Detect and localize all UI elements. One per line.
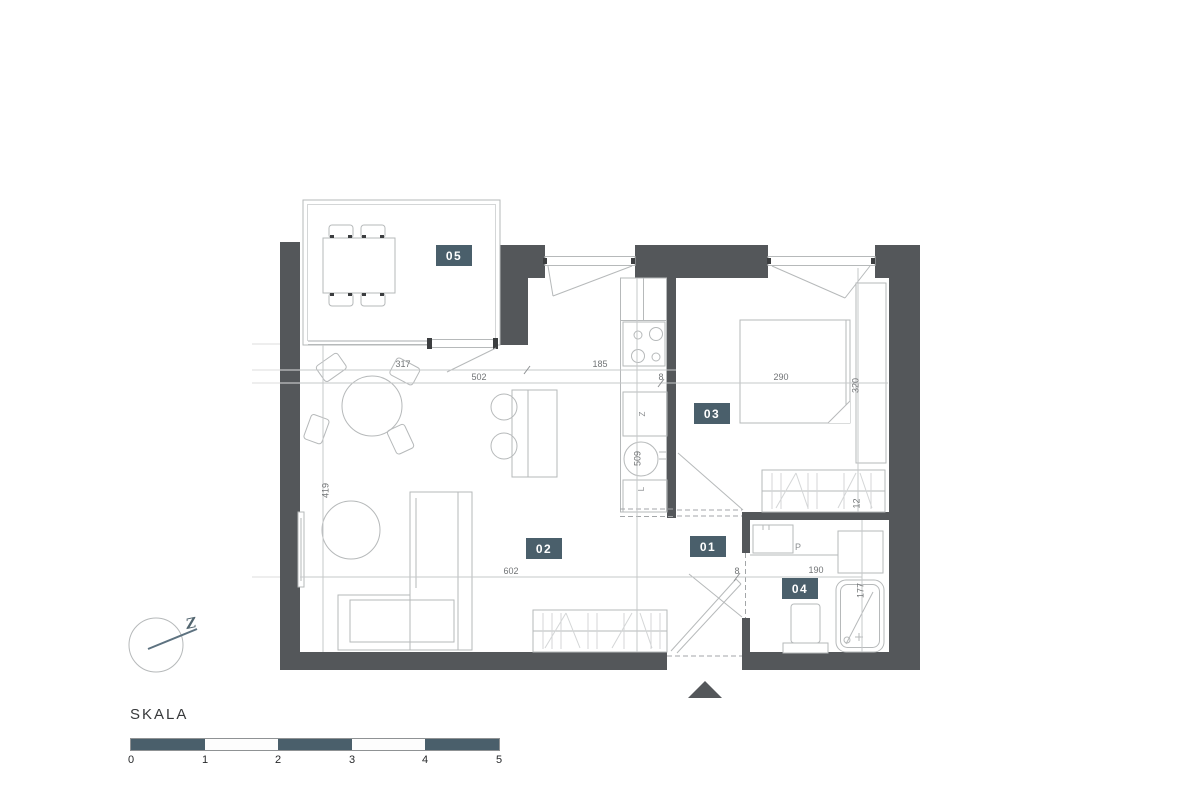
room-badge-02: 02: [526, 538, 562, 559]
balcony-table-set: [323, 225, 395, 306]
fridge-label: L: [636, 474, 646, 504]
scale-segment: [131, 739, 205, 750]
wall-bottom-left: [280, 652, 667, 670]
dimension-label-8-kitchen: 8: [646, 371, 676, 382]
scale-tick-0: 0: [121, 754, 141, 766]
wall-top-a: [528, 245, 545, 278]
scale-tick-1: 1: [195, 754, 215, 766]
dimension-label-185: 185: [585, 358, 615, 369]
entrance-marker-icon: [688, 681, 722, 698]
dishwasher-label: Z: [637, 399, 647, 429]
dimension-label-290: 290: [766, 371, 796, 382]
window-bedroom: [767, 257, 875, 299]
scale-bar-title: SKALA: [130, 706, 188, 723]
sofa: [338, 492, 472, 650]
wall-right: [889, 245, 920, 670]
scale-segment: [205, 739, 279, 750]
washing-machine-label: P: [783, 542, 813, 552]
wall-bottom-right: [742, 652, 920, 670]
wall-left: [280, 242, 300, 670]
room-badge-01: 01: [690, 536, 726, 557]
scale-tick-4: 4: [415, 754, 435, 766]
wall-bed-bath-divider: [742, 512, 889, 520]
bedside-column: [856, 283, 886, 463]
kitchen-island: [491, 390, 557, 477]
wall-kitchen-divider: [667, 278, 676, 518]
scale-tick-5: 5: [489, 754, 509, 766]
scale-segment: [425, 739, 499, 750]
dimension-label-190: 190: [801, 564, 831, 575]
balcony-outline: [303, 200, 500, 345]
dimension-label-419: 419: [320, 476, 331, 506]
wall-balcony-right-flank: [500, 245, 528, 345]
cooktop: [623, 322, 665, 366]
window-kitchen: [543, 257, 635, 297]
dimension-label-509: 509: [632, 444, 643, 474]
room-badge-04: 04: [782, 578, 818, 599]
dimension-label-317: 317: [388, 358, 418, 369]
bath-cabinet: [838, 531, 883, 573]
pouf: [322, 501, 380, 559]
door-swing-entry: [667, 579, 742, 656]
dimension-label-320: 320: [850, 371, 861, 401]
dimension-label-8-hall: 8: [722, 565, 752, 576]
dimension-label-177: 177: [855, 576, 866, 606]
door-swing-bathroom: [689, 553, 746, 618]
wall-bath-left-upper: [742, 520, 750, 553]
scale-tick-2: 2: [268, 754, 288, 766]
kitchen-sink: [624, 442, 667, 476]
compass-label: Z: [184, 615, 197, 633]
room-badge-05: 05: [436, 245, 472, 266]
room-badge-03: 03: [694, 403, 730, 424]
wardrobe-living: [533, 610, 667, 652]
wall-top-b: [635, 245, 768, 278]
door-swing-bedroom: [677, 453, 743, 516]
toilet: [783, 604, 828, 653]
wardrobe-bedroom: [762, 470, 885, 512]
floor-plan-linework: [0, 0, 1200, 800]
scale-segment: [352, 739, 426, 750]
scale-tick-3: 3: [342, 754, 362, 766]
dimension-label-502: 502: [464, 371, 494, 382]
wall-bath-left-lower: [742, 618, 750, 652]
scale-segment: [278, 739, 352, 750]
floor-plan: 05 03 02 01 04 317 185 502 8 290 602 8 1…: [0, 0, 1200, 800]
dimension-label-12: 12: [851, 489, 862, 519]
scale-bar: [130, 738, 500, 751]
dimension-label-602: 602: [496, 565, 526, 576]
